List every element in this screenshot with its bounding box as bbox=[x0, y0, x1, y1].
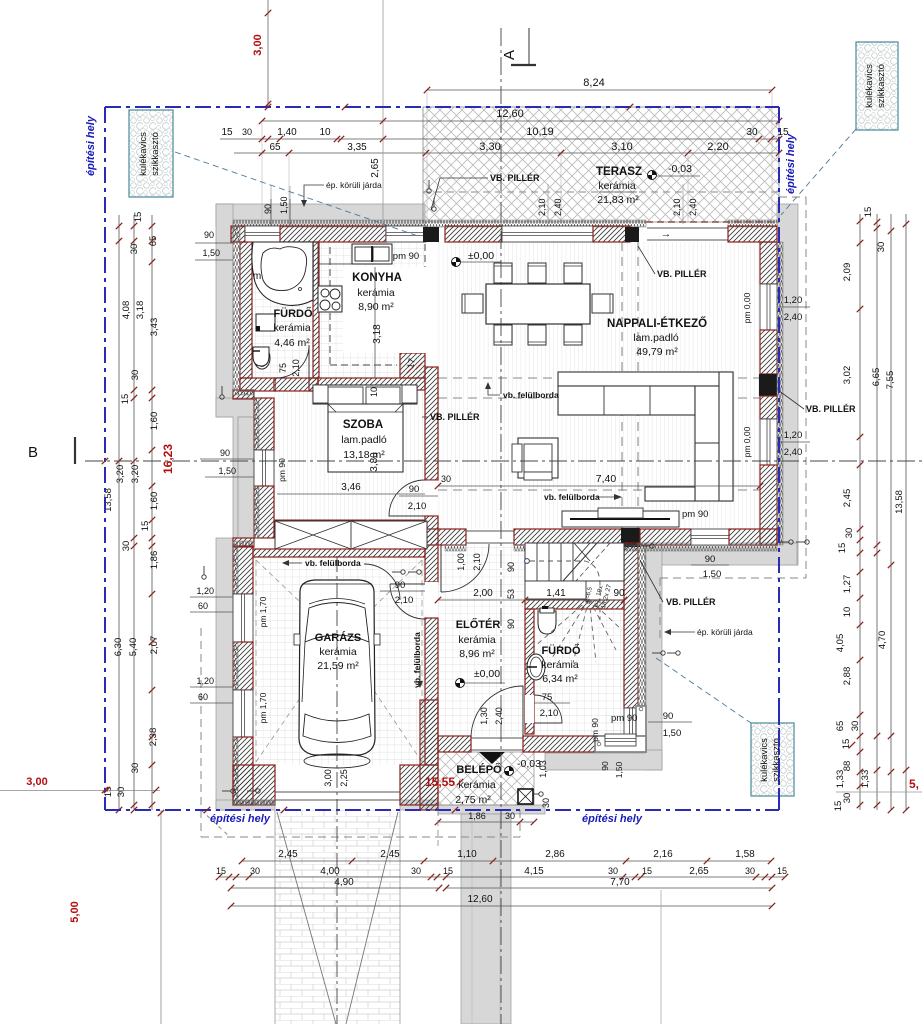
svg-text:BELÉPŐ: BELÉPŐ bbox=[456, 763, 502, 776]
svg-text:30: 30 bbox=[411, 866, 421, 876]
svg-text:15: 15 bbox=[120, 394, 131, 405]
svg-text:kerámia: kerámia bbox=[458, 779, 496, 791]
svg-text:FÜRDŐ: FÜRDŐ bbox=[273, 307, 313, 320]
svg-text:1,50: 1,50 bbox=[218, 466, 236, 476]
svg-text:5,: 5, bbox=[909, 777, 919, 791]
svg-text:építési hely: építési hely bbox=[210, 813, 271, 825]
svg-text:2,65: 2,65 bbox=[370, 158, 381, 178]
svg-text:65: 65 bbox=[148, 236, 159, 247]
svg-text:3,20: 3,20 bbox=[115, 465, 126, 484]
svg-text:1,60: 1,60 bbox=[149, 412, 160, 431]
svg-text:8,90 m²: 8,90 m² bbox=[358, 301, 394, 313]
svg-text:VB. PILLÉR: VB. PILLÉR bbox=[430, 412, 480, 422]
svg-text:15: 15 bbox=[642, 866, 652, 876]
svg-text:30: 30 bbox=[250, 866, 260, 876]
svg-text:3,00: 3,00 bbox=[26, 776, 47, 788]
svg-text:1,50: 1,50 bbox=[279, 196, 289, 214]
svg-text:1,20: 1,20 bbox=[196, 676, 214, 686]
svg-text:kerámia: kerámia bbox=[357, 287, 395, 299]
svg-text:90: 90 bbox=[263, 204, 273, 214]
svg-text:3,18: 3,18 bbox=[372, 324, 383, 344]
svg-text:30: 30 bbox=[441, 474, 451, 484]
svg-text:65: 65 bbox=[269, 142, 281, 153]
svg-text:1,50: 1,50 bbox=[202, 248, 220, 258]
svg-text:21,59 m²: 21,59 m² bbox=[317, 660, 359, 672]
svg-text:1,50: 1,50 bbox=[614, 761, 624, 778]
svg-text:szikkasztó: szikkasztó bbox=[876, 64, 887, 108]
svg-text:2,45: 2,45 bbox=[278, 849, 298, 860]
svg-text:8,24: 8,24 bbox=[583, 77, 604, 89]
svg-text:15: 15 bbox=[777, 866, 787, 876]
svg-text:90: 90 bbox=[705, 554, 716, 565]
svg-text:6,65: 6,65 bbox=[871, 368, 882, 387]
svg-text:1,50: 1,50 bbox=[703, 569, 722, 580]
svg-text:lam.padló: lam.padló bbox=[341, 434, 387, 446]
svg-text:GARÁZS: GARÁZS bbox=[315, 631, 361, 644]
svg-text:3,46: 3,46 bbox=[341, 482, 361, 493]
svg-text:10,19: 10,19 bbox=[526, 126, 554, 138]
svg-text:1,33: 1,33 bbox=[860, 770, 871, 789]
svg-text:kerámia: kerámia bbox=[273, 322, 311, 334]
svg-text:1,60: 1,60 bbox=[149, 492, 160, 511]
svg-text:15: 15 bbox=[841, 739, 852, 750]
svg-text:kerámia: kerámia bbox=[458, 634, 496, 646]
svg-text:30: 30 bbox=[745, 866, 755, 876]
svg-text:6,30: 6,30 bbox=[113, 638, 124, 657]
svg-text:1,03: 1,03 bbox=[538, 760, 548, 778]
svg-text:3,35: 3,35 bbox=[347, 142, 367, 153]
svg-text:A: A bbox=[501, 50, 518, 60]
svg-text:SZOBA: SZOBA bbox=[343, 419, 383, 431]
svg-text:2,07: 2,07 bbox=[149, 636, 160, 655]
svg-text:10: 10 bbox=[319, 127, 331, 138]
svg-text:15: 15 bbox=[833, 801, 844, 812]
svg-text:2,10: 2,10 bbox=[672, 198, 682, 216]
svg-text:3,18: 3,18 bbox=[135, 301, 146, 320]
svg-text:2,40: 2,40 bbox=[553, 198, 563, 216]
svg-text:15: 15 bbox=[221, 127, 233, 138]
svg-text:2,40: 2,40 bbox=[784, 312, 803, 323]
svg-text:±0,00: ±0,00 bbox=[474, 668, 500, 680]
svg-text:1,40: 1,40 bbox=[277, 127, 297, 138]
svg-text:1,50: 1,50 bbox=[663, 728, 682, 739]
svg-text:vb. felülborda: vb. felülborda bbox=[412, 632, 422, 688]
svg-text:pm 90: pm 90 bbox=[611, 713, 637, 724]
svg-text:2,40: 2,40 bbox=[784, 447, 803, 458]
svg-text:pm 1,70: pm 1,70 bbox=[258, 596, 268, 627]
svg-text:kerámia: kerámia bbox=[319, 646, 357, 658]
svg-text:4,46 m²: 4,46 m² bbox=[274, 337, 310, 349]
svg-text:1,86: 1,86 bbox=[468, 811, 486, 821]
svg-text:13,58: 13,58 bbox=[894, 490, 905, 514]
svg-text:30: 30 bbox=[876, 242, 887, 253]
svg-text:1,20: 1,20 bbox=[196, 586, 214, 596]
svg-text:90: 90 bbox=[506, 619, 516, 629]
svg-text:2,45: 2,45 bbox=[842, 489, 853, 508]
svg-text:3,20: 3,20 bbox=[130, 465, 141, 484]
svg-text:16,23: 16,23 bbox=[161, 444, 175, 474]
svg-text:3,00: 3,00 bbox=[252, 34, 264, 55]
svg-text:13,18 m²: 13,18 m² bbox=[343, 449, 385, 461]
svg-text:7,55: 7,55 bbox=[885, 371, 896, 390]
svg-text:2,00: 2,00 bbox=[473, 588, 493, 599]
svg-text:4,15: 4,15 bbox=[524, 866, 544, 877]
svg-text:építési hely: építési hely bbox=[582, 813, 643, 825]
svg-text:B: B bbox=[28, 444, 38, 461]
svg-text:VB. PILLÉR: VB. PILLÉR bbox=[806, 404, 856, 414]
svg-text:60: 60 bbox=[198, 601, 208, 611]
svg-text:53: 53 bbox=[506, 589, 516, 599]
svg-text:5,00: 5,00 bbox=[69, 901, 81, 922]
svg-text:15: 15 bbox=[216, 866, 226, 876]
svg-text:2,10: 2,10 bbox=[537, 198, 547, 216]
svg-text:kulékavics: kulékavics bbox=[864, 64, 875, 108]
svg-text:1,33: 1,33 bbox=[835, 770, 846, 789]
svg-text:15: 15 bbox=[443, 866, 453, 876]
svg-text:30: 30 bbox=[505, 811, 515, 821]
svg-text:VB. PILLÉR: VB. PILLÉR bbox=[666, 597, 716, 607]
svg-text:90: 90 bbox=[663, 711, 674, 722]
svg-text:90: 90 bbox=[220, 448, 230, 458]
svg-text:5,40: 5,40 bbox=[128, 638, 139, 657]
svg-text:m: m bbox=[253, 271, 261, 282]
svg-text:30: 30 bbox=[746, 127, 758, 138]
svg-text:30: 30 bbox=[130, 370, 141, 381]
svg-text:ép. körüli járda: ép. körüli járda bbox=[326, 180, 382, 190]
svg-text:2,10: 2,10 bbox=[408, 501, 427, 512]
svg-text:8,96 m²: 8,96 m² bbox=[459, 648, 495, 660]
svg-text:90: 90 bbox=[204, 230, 214, 240]
svg-text:TERASZ: TERASZ bbox=[596, 166, 642, 178]
svg-text:7,70: 7,70 bbox=[610, 877, 630, 888]
svg-text:3,00: 3,00 bbox=[323, 769, 333, 787]
svg-text:FÜRDŐ: FÜRDŐ bbox=[541, 644, 581, 657]
svg-text:lam.padló: lam.padló bbox=[633, 332, 679, 344]
svg-text:VB. PILLÉR: VB. PILLÉR bbox=[657, 269, 707, 279]
svg-text:2,10: 2,10 bbox=[540, 708, 559, 719]
svg-text:90: 90 bbox=[613, 588, 625, 599]
svg-text:12,60: 12,60 bbox=[496, 108, 524, 120]
svg-text:2,40: 2,40 bbox=[688, 198, 698, 216]
svg-text:2,16: 2,16 bbox=[653, 849, 673, 860]
svg-text:2,45: 2,45 bbox=[380, 849, 400, 860]
svg-text:2,86: 2,86 bbox=[545, 849, 565, 860]
svg-text:30: 30 bbox=[129, 244, 140, 255]
svg-text:30: 30 bbox=[242, 127, 252, 137]
svg-text:1,41: 1,41 bbox=[546, 588, 566, 599]
svg-text:pm 90: pm 90 bbox=[277, 458, 287, 482]
svg-text:3,30: 3,30 bbox=[479, 141, 500, 153]
svg-text:1,10: 1,10 bbox=[457, 849, 477, 860]
svg-text:3,02: 3,02 bbox=[842, 366, 853, 385]
svg-text:75: 75 bbox=[278, 363, 288, 373]
svg-text:VB. PILLÉR: VB. PILLÉR bbox=[490, 173, 540, 183]
svg-text:7,40: 7,40 bbox=[596, 473, 617, 485]
svg-text:2,75 m²: 2,75 m² bbox=[455, 794, 491, 806]
svg-text:1,00: 1,00 bbox=[456, 553, 466, 571]
svg-text:15: 15 bbox=[837, 543, 848, 554]
svg-text:→: → bbox=[661, 228, 672, 240]
svg-text:17: 17 bbox=[405, 357, 417, 369]
svg-text:3,10: 3,10 bbox=[611, 141, 632, 153]
svg-text:3,43: 3,43 bbox=[149, 318, 160, 337]
svg-text:2,38: 2,38 bbox=[148, 728, 159, 747]
svg-text:kulékavics: kulékavics bbox=[759, 738, 770, 782]
svg-text:15: 15 bbox=[133, 212, 144, 223]
svg-text:2,09: 2,09 bbox=[842, 263, 853, 282]
svg-text:kulékavics: kulékavics bbox=[138, 132, 149, 176]
svg-text:pm 0,00: pm 0,00 bbox=[742, 426, 752, 457]
svg-text:2,88: 2,88 bbox=[842, 667, 853, 686]
svg-text:-0,03: -0,03 bbox=[668, 163, 692, 175]
svg-text:90: 90 bbox=[506, 562, 516, 572]
svg-text:pm 0,00: pm 0,00 bbox=[742, 292, 752, 323]
svg-text:pm 1,70: pm 1,70 bbox=[258, 692, 268, 723]
svg-text:1,20: 1,20 bbox=[784, 430, 803, 441]
svg-text:30: 30 bbox=[541, 798, 551, 808]
svg-text:pm 90: pm 90 bbox=[682, 509, 708, 520]
svg-text:szikkasztó: szikkasztó bbox=[150, 132, 161, 176]
svg-text:2,10: 2,10 bbox=[472, 553, 482, 571]
svg-text:2,10: 2,10 bbox=[395, 595, 414, 606]
svg-text:ELŐTÉR: ELŐTÉR bbox=[456, 618, 501, 631]
svg-text:2,10: 2,10 bbox=[291, 359, 301, 377]
svg-text:2,40: 2,40 bbox=[494, 707, 504, 725]
svg-text:60: 60 bbox=[198, 692, 208, 702]
svg-text:21,83 m²: 21,83 m² bbox=[597, 194, 639, 206]
svg-text:építési hely: építési hely bbox=[85, 115, 97, 176]
svg-text:1,30: 1,30 bbox=[479, 707, 489, 725]
svg-text:30: 30 bbox=[121, 541, 132, 552]
svg-text:építési hely: építési hely bbox=[785, 133, 797, 194]
svg-text:vb. felülborda: vb. felülborda bbox=[544, 492, 600, 502]
svg-text:vb. felülborda: vb. felülborda bbox=[503, 390, 559, 400]
svg-text:vb. felülborda: vb. felülborda bbox=[305, 558, 361, 568]
svg-text:1,58: 1,58 bbox=[735, 849, 755, 860]
svg-text:pm 90: pm 90 bbox=[590, 718, 600, 742]
svg-text:30: 30 bbox=[850, 721, 861, 732]
svg-text:6,34 m²: 6,34 m² bbox=[542, 673, 578, 685]
svg-text:90: 90 bbox=[409, 484, 420, 495]
svg-text:49,79 m²: 49,79 m² bbox=[636, 346, 678, 358]
svg-text:30: 30 bbox=[116, 787, 127, 798]
svg-text:KONYHA: KONYHA bbox=[352, 272, 402, 284]
svg-text:1,86: 1,86 bbox=[149, 551, 160, 570]
svg-text:30: 30 bbox=[608, 866, 618, 876]
svg-text:pm 90: pm 90 bbox=[393, 251, 419, 262]
svg-text:2,20: 2,20 bbox=[707, 141, 728, 153]
svg-text:30: 30 bbox=[130, 763, 141, 774]
svg-text:88: 88 bbox=[842, 761, 853, 772]
svg-text:NAPPALI-ÉTKEZŐ: NAPPALI-ÉTKEZŐ bbox=[607, 317, 707, 330]
svg-text:75: 75 bbox=[542, 692, 553, 703]
svg-text:90: 90 bbox=[395, 580, 406, 591]
svg-text:2,25: 2,25 bbox=[339, 769, 349, 787]
svg-text:kerámia: kerámia bbox=[598, 180, 636, 192]
svg-text:10: 10 bbox=[369, 387, 379, 397]
svg-text:15: 15 bbox=[863, 207, 874, 218]
svg-text:2,65: 2,65 bbox=[689, 866, 709, 877]
svg-text:szikkasztó: szikkasztó bbox=[771, 738, 782, 782]
svg-text:1,20: 1,20 bbox=[784, 295, 803, 306]
svg-text:kerámia: kerámia bbox=[541, 659, 579, 671]
svg-text:4,05: 4,05 bbox=[835, 634, 846, 653]
svg-text:10: 10 bbox=[842, 607, 853, 618]
svg-text:65: 65 bbox=[835, 721, 846, 732]
svg-text:4,08: 4,08 bbox=[121, 301, 132, 320]
svg-text:15,55: 15,55 bbox=[425, 775, 455, 789]
svg-text:±0,00: ±0,00 bbox=[468, 250, 494, 262]
svg-text:1,27: 1,27 bbox=[842, 575, 853, 594]
svg-text:30: 30 bbox=[844, 528, 855, 539]
svg-text:90: 90 bbox=[600, 761, 610, 771]
svg-text:4,70: 4,70 bbox=[877, 631, 888, 650]
svg-text:12,60: 12,60 bbox=[467, 894, 492, 905]
svg-text:ép. körüli járda: ép. körüli járda bbox=[697, 627, 753, 637]
